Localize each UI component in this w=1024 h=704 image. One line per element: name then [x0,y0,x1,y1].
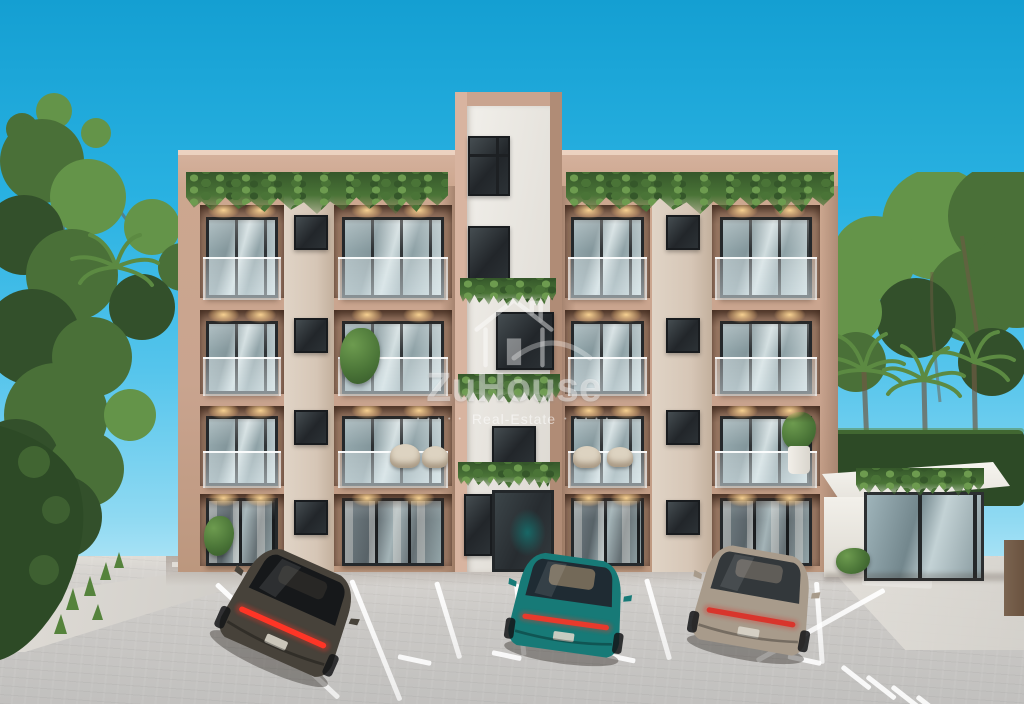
balcony-unit [334,205,452,298]
hedge-foreground-left [0,420,150,670]
balcony-unit [200,205,284,298]
building-left-wing [178,150,455,572]
central-tower [455,92,562,572]
patio-chair [607,447,633,467]
building-right-wing [562,150,838,572]
patio-chair [390,444,420,468]
patio-chair [573,446,601,468]
balcony-unit [565,310,650,394]
stair-window [666,318,700,353]
balcony-unit [712,205,820,298]
sliding-glass-door [342,498,444,566]
balcony-unit [200,310,284,394]
stair-window [294,500,328,535]
parked-car-teal-sedan [490,531,647,680]
balcony-unit [200,406,284,486]
ground-floor-unit [334,494,452,566]
balcony-unit [565,406,650,486]
balcony-unit [334,406,452,486]
glass-railing [338,257,449,300]
gatehouse-glass-doors [864,492,984,581]
entrance-sidelight [464,494,492,556]
stair-window [294,318,328,353]
tower-window [468,226,510,286]
stair-window [666,410,700,445]
tower-window [496,312,554,370]
glass-railing [203,451,282,488]
glass-railing [203,257,282,300]
stair-window [294,410,328,445]
tower-window [492,426,536,466]
rendering-scene: ZuHouse • • • • • Real-Estate • • • • • [0,0,1024,704]
balcony-unit [712,310,820,394]
balcony-unit [712,406,820,486]
glass-railing [203,357,282,396]
white-planter [788,446,810,474]
gatehouse-shadow [824,573,1010,581]
tower-window [468,136,510,196]
balcony-unit [565,205,650,298]
parked-car-champagne-sedan [671,522,836,680]
patio-chair [422,446,448,468]
balcony-unit [334,310,452,394]
glass-railing [715,357,817,396]
stair-window [666,215,700,250]
glass-railing [568,357,648,396]
glass-railing [568,257,648,300]
glass-railing [715,257,817,300]
wooden-post [1004,540,1024,616]
stair-window [294,215,328,250]
